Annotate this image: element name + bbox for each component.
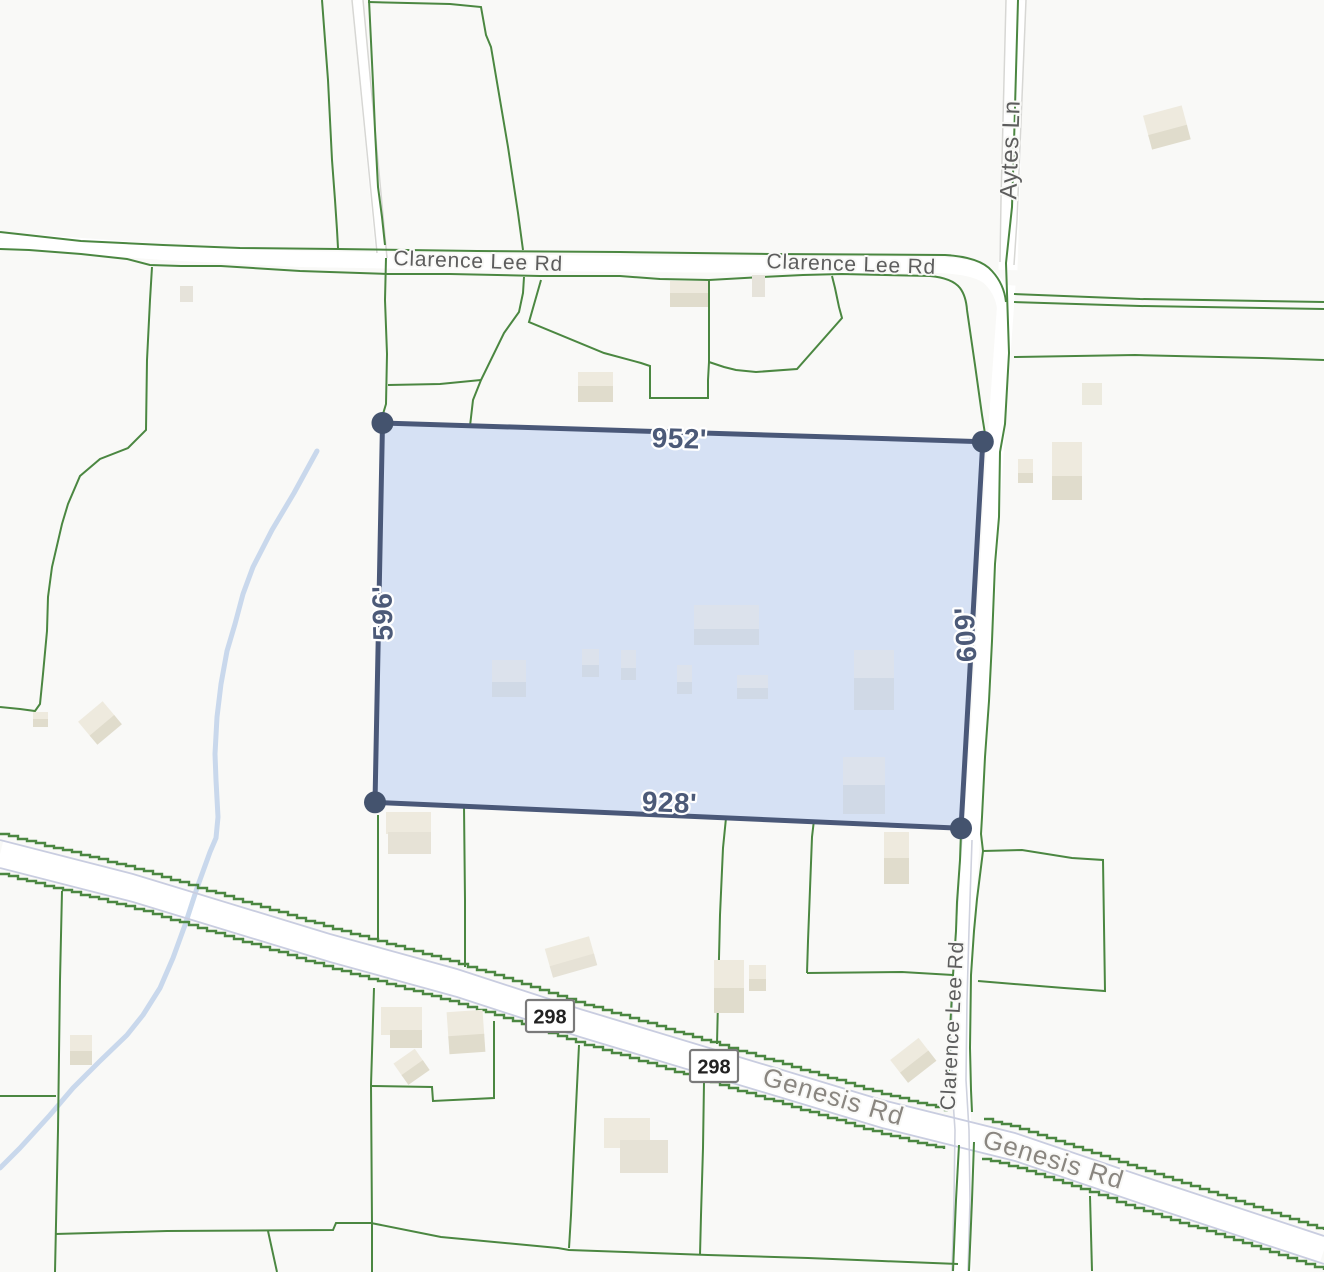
svg-text:928': 928' — [641, 786, 697, 819]
svg-text:596': 596' — [366, 585, 398, 641]
svg-text:609': 609' — [949, 606, 983, 663]
svg-text:Aytes Ln: Aytes Ln — [995, 100, 1025, 200]
svg-text:952': 952' — [651, 422, 707, 455]
svg-text:298: 298 — [533, 1007, 566, 1029]
svg-text:298: 298 — [697, 1057, 730, 1079]
